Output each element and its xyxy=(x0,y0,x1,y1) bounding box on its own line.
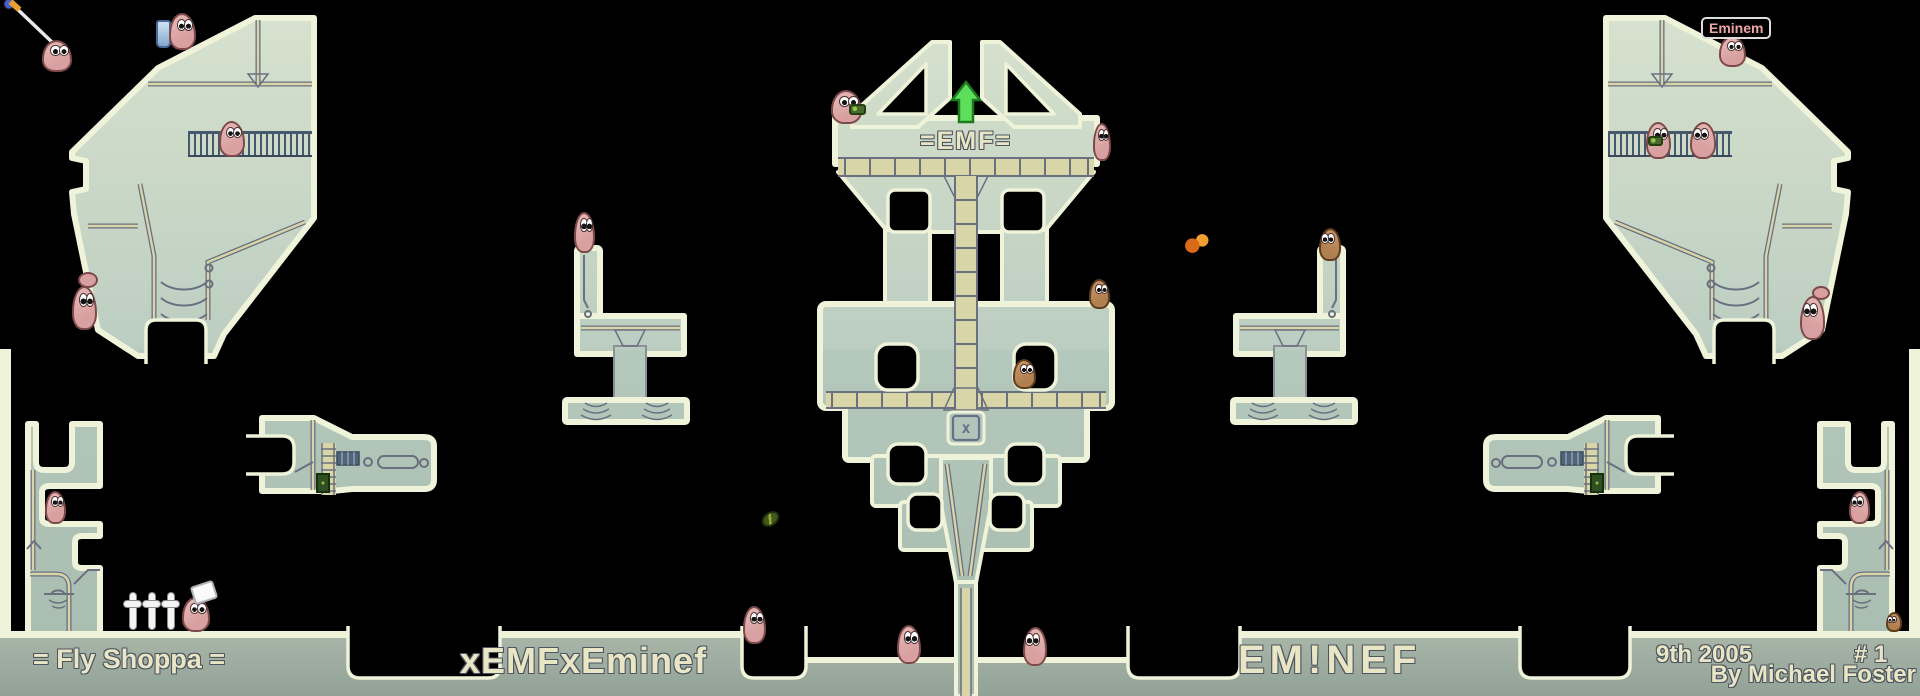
gravestone-1 xyxy=(123,592,142,630)
worm-name-label: Eminem xyxy=(1701,17,1771,39)
jetpack-worm[interactable] xyxy=(169,13,196,50)
post-worm-left[interactable] xyxy=(574,212,595,253)
emf-banner: =EMF= xyxy=(866,127,1066,156)
ledge-worm-right[interactable] xyxy=(1800,296,1825,340)
rope-worm[interactable] xyxy=(42,40,72,72)
flame xyxy=(1184,232,1210,254)
x-box-symbol: x xyxy=(953,416,979,440)
sprites-layer xyxy=(0,0,1920,696)
caged-gear xyxy=(1648,136,1663,146)
stray-grenade xyxy=(759,508,783,530)
tier-worm-brown[interactable] xyxy=(1089,279,1110,309)
pocket-worm-left[interactable] xyxy=(45,491,66,524)
notch-worm-brown[interactable] xyxy=(1013,359,1036,389)
floor-worm-center-right[interactable] xyxy=(1023,627,1047,666)
map-title: = Fly Shoppa = xyxy=(33,644,225,675)
ledge-worm-left[interactable] xyxy=(72,286,97,330)
floor-worm-left[interactable] xyxy=(743,606,766,644)
tower-worm-edge[interactable] xyxy=(1093,123,1111,161)
corner-worm[interactable] xyxy=(1886,612,1902,632)
caged-worm-right[interactable] xyxy=(1690,122,1716,159)
map-credit: By Michael Foster xyxy=(1711,661,1916,689)
post-worm-right[interactable] xyxy=(1319,228,1341,261)
team-name-right: EM!NEF xyxy=(1238,638,1421,683)
eminem-worm[interactable] xyxy=(1719,36,1746,67)
worms-map-scene: =EMF= x = Fly Shoppa = xEMFxEminef EM!NE… xyxy=(0,0,1920,696)
gravestone-3 xyxy=(161,592,180,630)
caged-worm-left[interactable] xyxy=(219,121,245,157)
team-name-left: xEMFxEminef xyxy=(460,640,707,682)
gravestone-2 xyxy=(142,592,161,630)
pocket-worm-right[interactable] xyxy=(1849,491,1870,524)
floor-worm-center-left[interactable] xyxy=(897,625,921,664)
flag-worm-hat xyxy=(190,580,219,605)
bazooka-green xyxy=(849,104,866,115)
